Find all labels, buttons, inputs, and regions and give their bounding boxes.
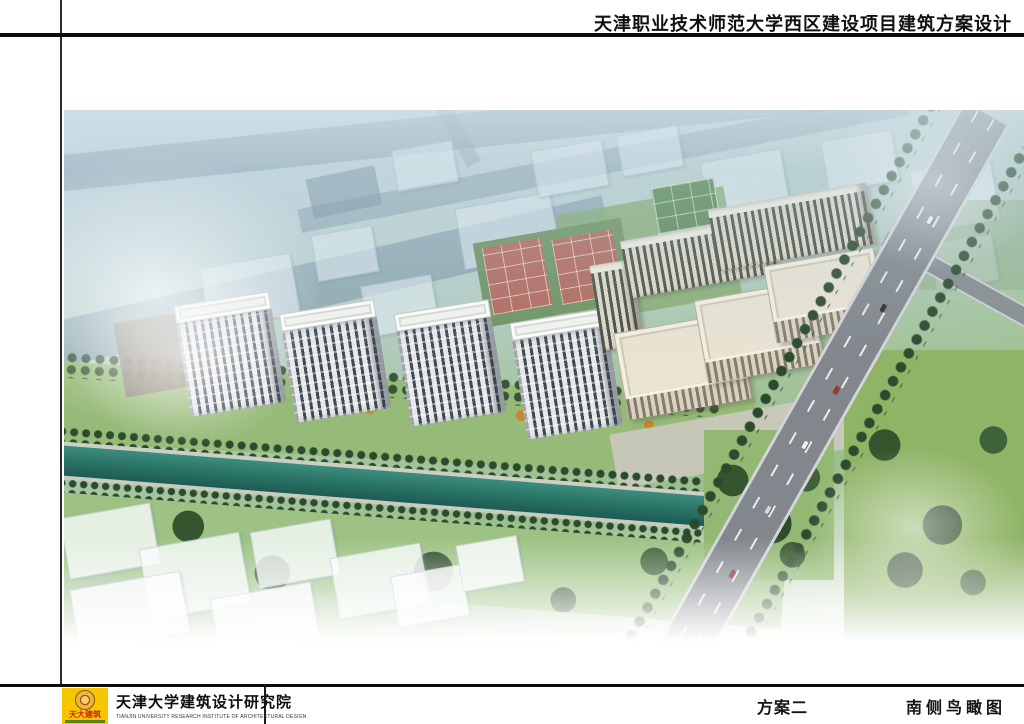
- page-title: 天津职业技术师范大学西区建设项目建筑方案设计: [594, 10, 1012, 36]
- left-frame-rule: [60, 0, 62, 685]
- institute-name-en: TIANJIN UNIVERSITY RESEARCH INSTITUTE OF…: [116, 714, 307, 720]
- dormitory-building-3: [394, 299, 507, 427]
- ghost-building: [616, 125, 684, 177]
- dormitory-facade: [177, 309, 287, 417]
- footer-rule: [0, 684, 1024, 687]
- dormitory-building-2: [279, 299, 391, 423]
- dormitory-facade: [396, 317, 506, 427]
- presentation-sheet: 天津职业技术师范大学西区建设项目建筑方案设计: [0, 0, 1024, 724]
- dormitory-building-1: [174, 291, 286, 417]
- ghost-building: [530, 139, 609, 198]
- ghost-building: [390, 564, 470, 628]
- logo-tagline-strip: [65, 720, 105, 723]
- institute-logo: 天大建筑: [62, 688, 108, 724]
- institute-name-cn: 天津大学建筑设计研究院: [116, 691, 307, 712]
- aerial-rendering: [64, 110, 1024, 668]
- institute-name-block: 天津大学建筑设计研究院 TIANJIN UNIVERSITY RESEARCH …: [116, 691, 307, 720]
- seal-icon: [75, 690, 95, 710]
- red-courts: [482, 238, 553, 315]
- dormitory-facade: [282, 317, 391, 423]
- ghost-building: [69, 571, 190, 652]
- logo-seal-text: 天大建筑: [69, 710, 101, 719]
- scheme-label: 方案二: [757, 694, 808, 718]
- view-label: 南侧鸟瞰图: [906, 694, 1006, 718]
